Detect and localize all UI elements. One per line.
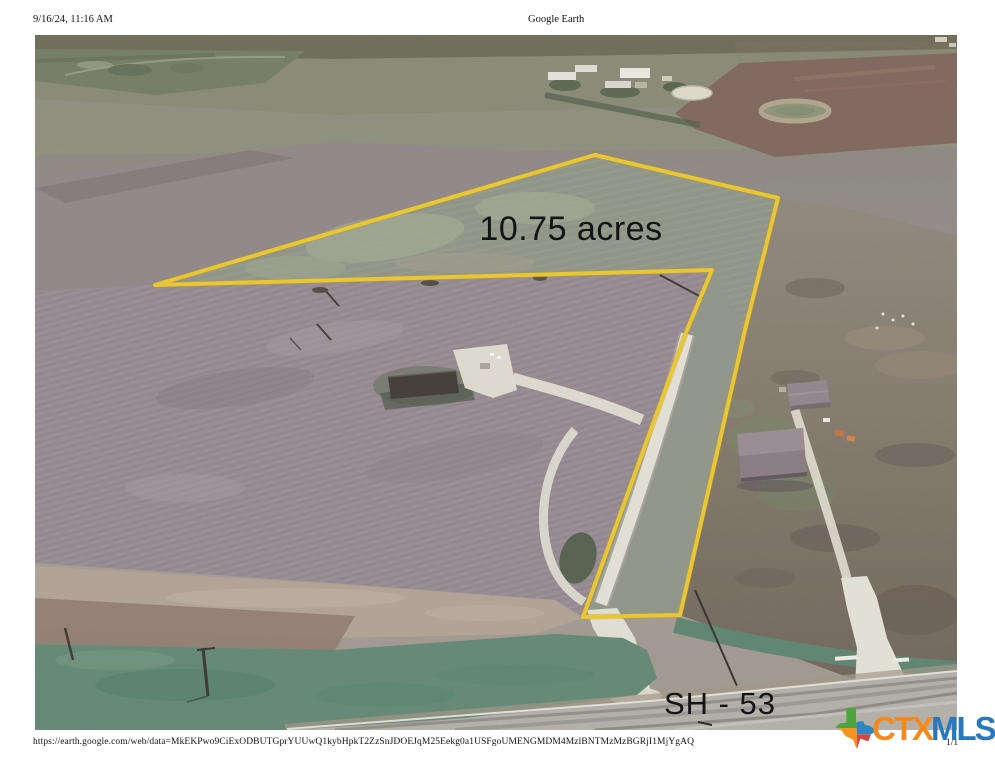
logo-mls-text: MLS xyxy=(931,710,995,748)
acreage-label: 10.75 acres xyxy=(479,210,662,248)
photo-grain xyxy=(35,35,957,730)
header-title: Google Earth xyxy=(528,14,584,25)
printed-page: 9/16/24, 11:16 AM Google Earth xyxy=(0,0,995,768)
header-datetime: 9/16/24, 11:16 AM xyxy=(33,14,113,25)
footer-url: https://earth.google.com/web/data=MkEKPw… xyxy=(33,737,694,747)
road-label: SH - 53 xyxy=(664,686,776,721)
logo-ctx-text: CTX xyxy=(872,710,932,748)
aerial-photo: 10.75 acres SH - 53 xyxy=(35,35,957,730)
ctxmls-logo: CTX MLS xyxy=(834,706,995,752)
